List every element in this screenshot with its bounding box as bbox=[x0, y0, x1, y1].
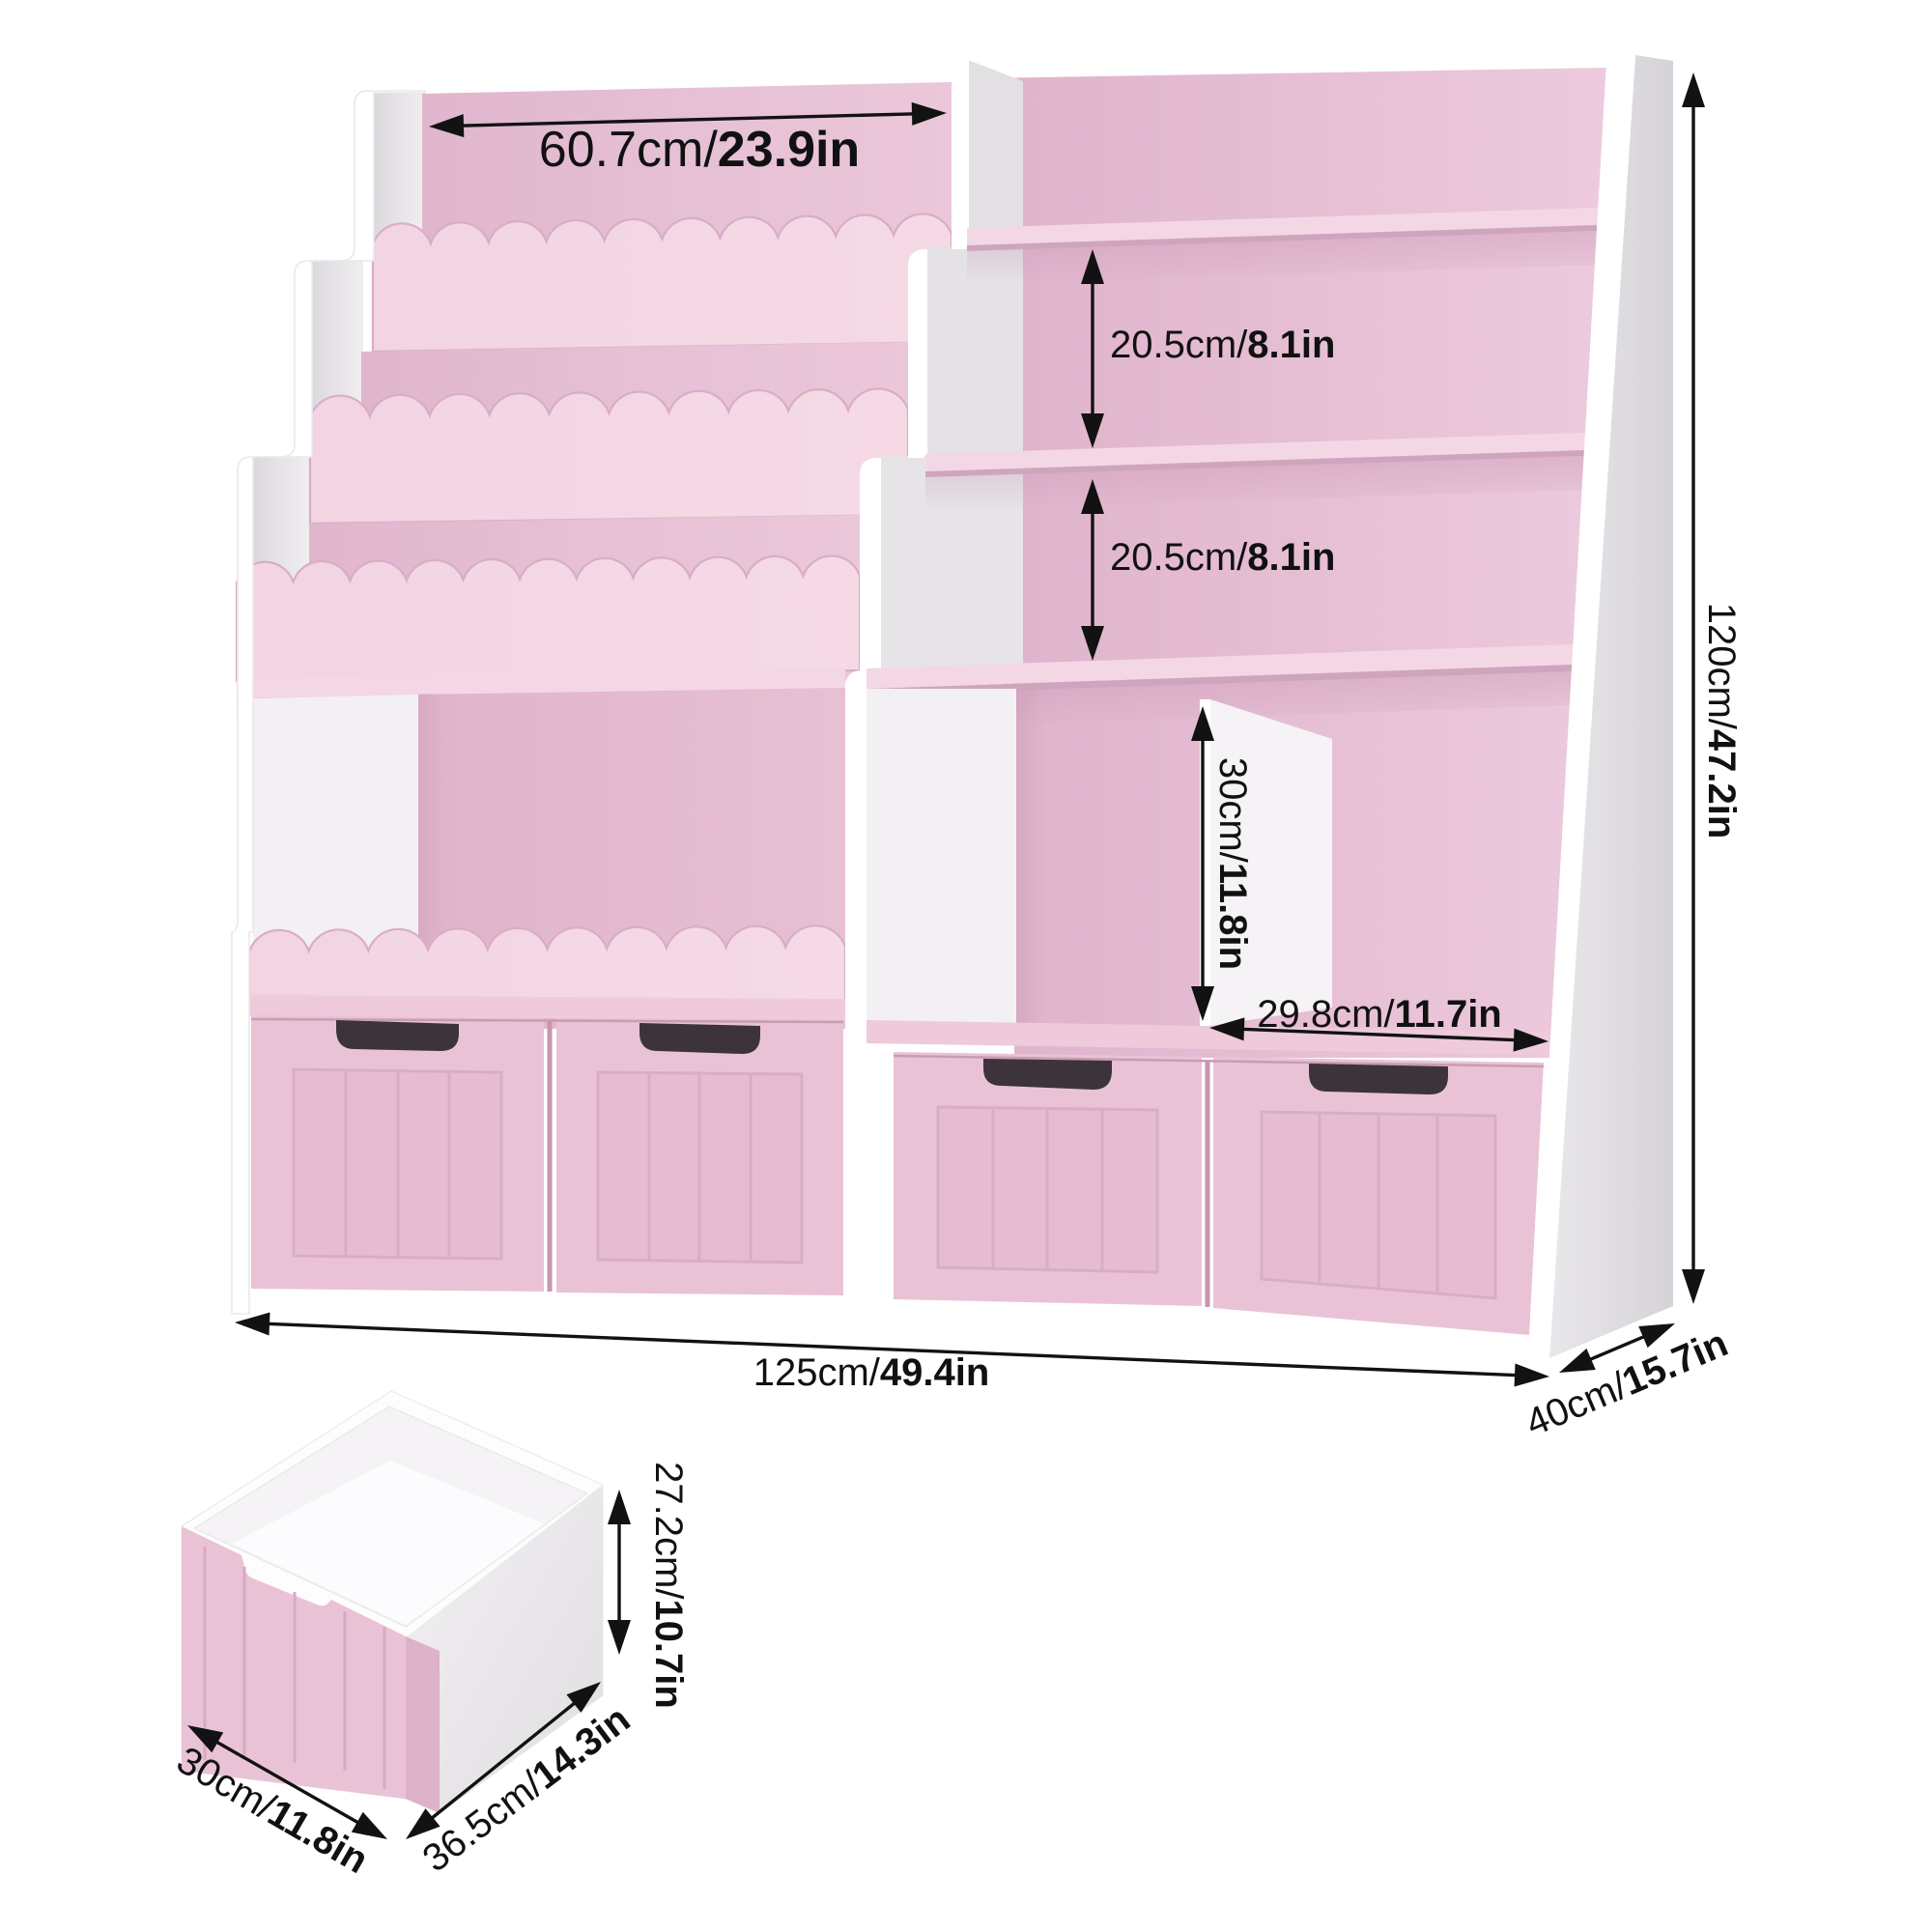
svg-text:29.8cm/11.7in: 29.8cm/11.7in bbox=[1257, 993, 1502, 1036]
svg-text:20.5cm/8.1in: 20.5cm/8.1in bbox=[1110, 536, 1335, 579]
svg-text:120cm/47.2in: 120cm/47.2in bbox=[1700, 603, 1743, 839]
svg-text:20.5cm/8.1in: 20.5cm/8.1in bbox=[1110, 324, 1335, 366]
svg-text:27.2cm/10.7in: 27.2cm/10.7in bbox=[647, 1462, 690, 1709]
svg-text:125cm/49.4in: 125cm/49.4in bbox=[753, 1351, 990, 1394]
svg-text:60.7cm/23.9in: 60.7cm/23.9in bbox=[539, 122, 860, 178]
svg-text:30cm/11.8in: 30cm/11.8in bbox=[1211, 757, 1254, 970]
